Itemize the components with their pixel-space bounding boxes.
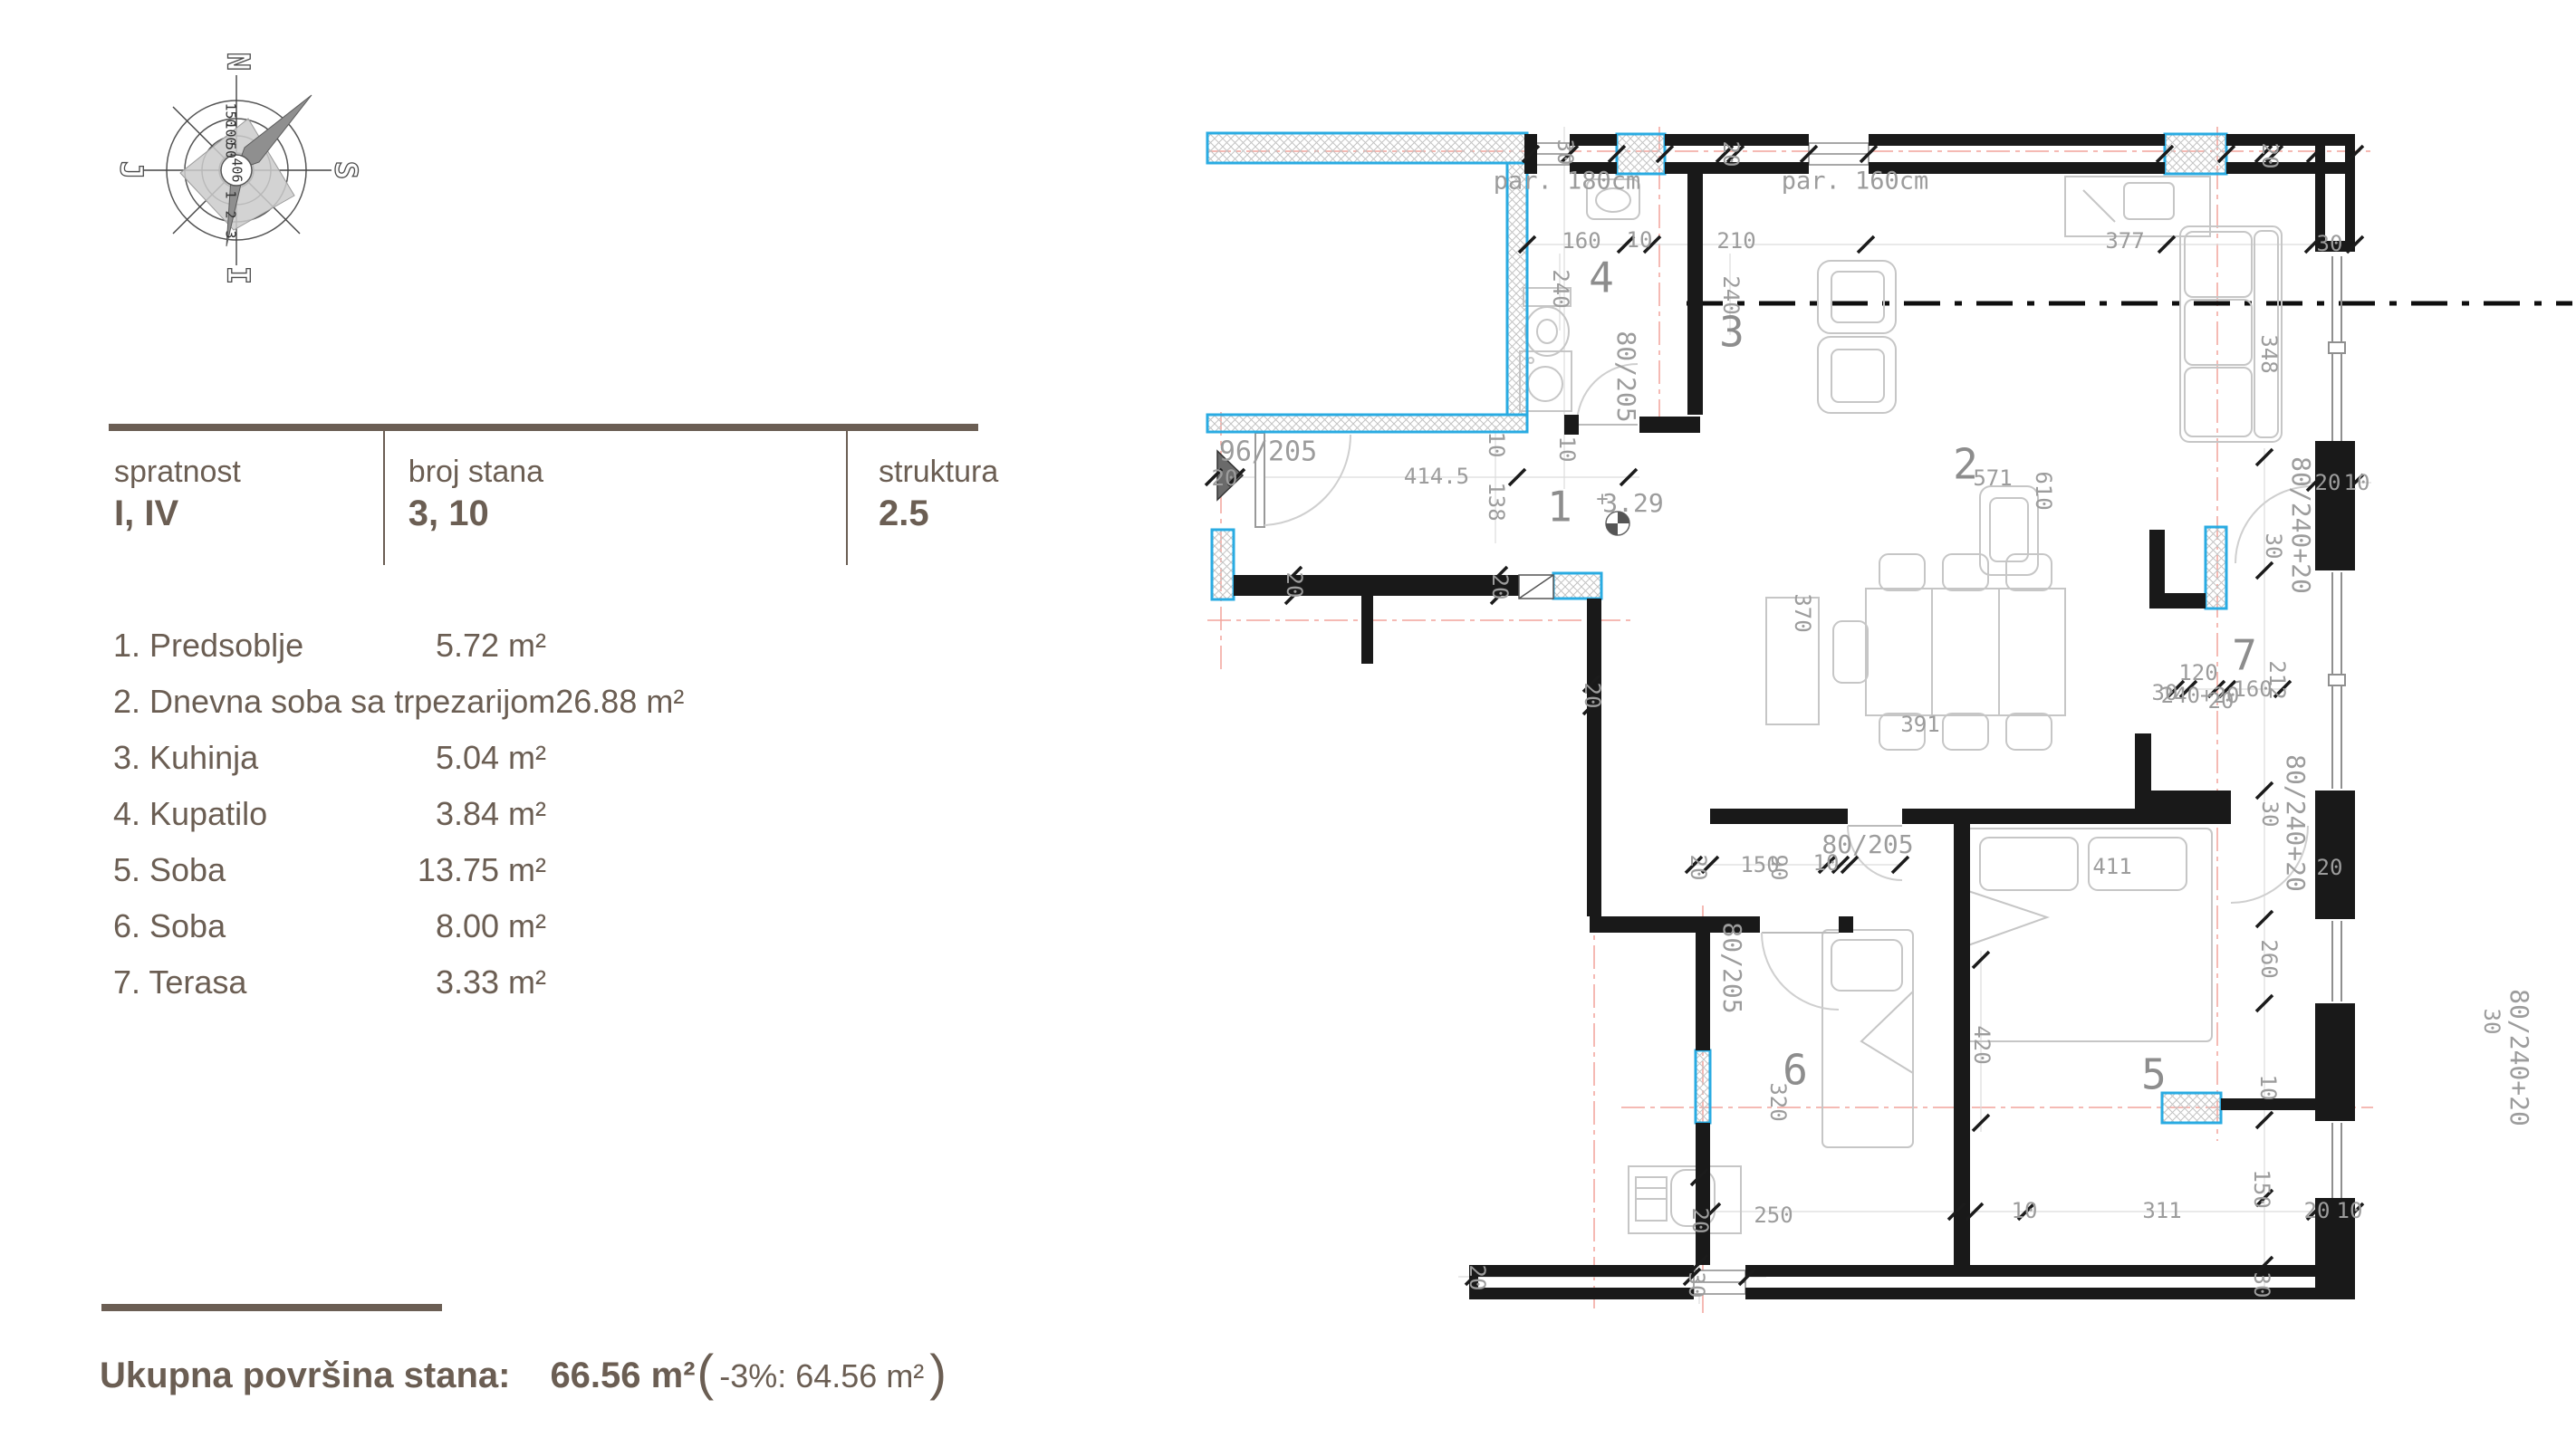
window-room6 [1696, 1050, 1710, 1123]
dim-label: 10 [2012, 1198, 2038, 1223]
dim-label: 160 [1562, 228, 1600, 254]
compass-labels: NSIJ15010050406123 [113, 53, 364, 284]
compass-letter: I [220, 266, 256, 284]
total-paren-open: ( [697, 1343, 715, 1402]
dim-label: 3.29 [1602, 488, 1663, 518]
floor-label: spratnost [114, 455, 383, 489]
dim-label: 80/240+20 [2286, 456, 2316, 594]
room-name: 5. Soba [113, 842, 226, 898]
room6-door [1762, 933, 1839, 1010]
dim-label: 96/205 [1219, 436, 1317, 468]
hall-wall-piece [1553, 573, 1601, 599]
dim-label: 138 [1484, 482, 1509, 521]
room-number: 5 [2141, 1050, 2167, 1099]
dim-label: par. 180cm [1494, 168, 1641, 196]
total-paren-close: ) [929, 1343, 947, 1402]
floor-plan-drawing: 3020par. 180cmpar. 160cm2016010210377302… [1177, 54, 2576, 1376]
room-number: 1 [1547, 483, 1572, 532]
dim-label: 391 [1900, 712, 1939, 737]
dim-label: 20 [1465, 1265, 1490, 1291]
dim-label: + [1596, 488, 1608, 511]
walls [1234, 134, 2355, 1299]
dim-label: 30 [2261, 533, 2286, 560]
dim-label: 571 [1973, 465, 2012, 491]
floor-value: I, IV [114, 493, 383, 534]
room-area: 3.33 m² [436, 954, 546, 1011]
dim-label: 10 [2344, 470, 2370, 495]
dim-label: 240 [1548, 269, 1573, 308]
double-bed [1966, 829, 2212, 1041]
compass-letter: N [220, 53, 256, 71]
dim-label: 20 [2208, 688, 2235, 714]
dim-label: 80/240+20 [2504, 989, 2534, 1126]
dim-label: 120 [2178, 660, 2217, 685]
room-list-item: 7. Terasa 3.33 m² [113, 954, 546, 1011]
dim-label: 30 [2479, 1009, 2504, 1035]
dim-label: 150 [2249, 1169, 2274, 1208]
dim-label: 10 [2255, 1075, 2281, 1101]
dim-label: 20 [2257, 143, 2283, 169]
dim-label: 414.5 [1404, 464, 1469, 489]
dim-label: 20 [1580, 683, 1605, 709]
dim-label: 420 [1969, 1025, 1994, 1064]
room-area: 13.75 m² [418, 842, 546, 898]
total-reduced-value: -3%: 64.56 m² [719, 1357, 924, 1395]
dim-label: 20 [1487, 574, 1513, 600]
dim-label: 10 [1627, 227, 1653, 253]
room-list: 1. Predsoblje 5.72 m² 2. Dnevna soba sa … [113, 618, 546, 1011]
dim-label: 30 [1552, 139, 1578, 166]
room-number: 3 [1719, 308, 1745, 357]
total-label: Ukupna površina stana: [100, 1356, 510, 1396]
apartment-info-table: spratnost I, IV broj stana 3, 10 struktu… [109, 424, 978, 565]
room-list-item: 4. Kupatilo 3.84 m² [113, 786, 546, 842]
dim-label: 80/205 [1717, 922, 1747, 1013]
dim-label: 90 [1766, 855, 1792, 881]
dim-label: 30 [2317, 231, 2343, 256]
total-area-line: Ukupna površina stana: 66.56 m² ( -3%: 6… [100, 1340, 948, 1399]
dim-label: 20 [1686, 855, 1711, 881]
room-name: 3. Kuhinja [113, 730, 258, 786]
dim-label: 10 [2337, 1198, 2363, 1223]
apartment-number-label: broj stana [409, 455, 846, 489]
dim-label: 30 [1684, 1272, 1709, 1298]
dim-label: 370 [1790, 593, 1815, 632]
total-value: 66.56 m² [550, 1356, 695, 1396]
armchair [1818, 261, 1896, 333]
compass-scale-label: 2 [223, 210, 239, 218]
room-list-item: 2. Dnevna soba sa trpezarijom 26.88 m² [113, 674, 546, 730]
room-name: 1. Predsoblje [113, 618, 303, 674]
room-list-item: 5. Soba 13.75 m² [113, 842, 546, 898]
desk [1629, 1166, 1741, 1233]
dim-label: 20 [2304, 1198, 2331, 1223]
apartment-number-value: 3, 10 [409, 493, 846, 534]
highlighted-windows [1207, 133, 2226, 1123]
dim-label: 311 [2142, 1198, 2181, 1223]
dim-label: par. 160cm [1782, 168, 1929, 196]
compass-rose: NSIJ15010050406123 [87, 16, 386, 315]
room-area: 26.88 m² [555, 674, 684, 730]
room-number: 6 [1783, 1046, 1808, 1095]
dim-label: 80/240+20 [2281, 754, 2311, 892]
dim-label: 80/205 [1611, 331, 1641, 422]
room-list-item: 6. Soba 8.00 m² [113, 898, 546, 954]
dimension-labels: 3020par. 180cmpar. 160cm2016010210377302… [1212, 139, 2534, 1298]
dim-label: 20 [1718, 141, 1744, 168]
dim-label: 250 [1754, 1203, 1793, 1228]
dim-label: 260 [2256, 939, 2282, 978]
single-bed [1822, 930, 1913, 1147]
room-number: 2 [1953, 440, 1978, 489]
dim-label: 20 [1282, 572, 1307, 599]
room-area: 5.72 m² [436, 618, 546, 674]
armchair [1818, 337, 1896, 413]
compass-scale-label: 1 [223, 190, 239, 198]
info-col-floor: spratnost I, IV [109, 431, 383, 565]
room-number: 7 [2232, 631, 2257, 680]
dim-label: 210 [1716, 228, 1755, 254]
dim-label: 20 [1687, 1208, 1713, 1234]
dim-label: 30 [2257, 801, 2283, 828]
adjacent-structure-top [1207, 133, 1527, 163]
entrance-pier [1212, 530, 1234, 599]
room-area: 5.04 m² [436, 730, 546, 786]
dim-label: 20 [1212, 465, 1238, 491]
dim-label: 10 [1484, 432, 1509, 458]
dim-label: 411 [2092, 854, 2131, 879]
dim-label: 377 [2105, 228, 2144, 254]
room-name: 7. Terasa [113, 954, 246, 1011]
room-name: 2. Dnevna soba sa trpezarijom [113, 674, 555, 730]
dim-label: 80/205 [1821, 829, 1913, 859]
total-divider [101, 1304, 442, 1311]
window-room5 [2162, 1093, 2221, 1123]
adjacent-structure-side [1507, 163, 1527, 415]
dim-label: 20 [2317, 855, 2343, 880]
compass-scale-label: 50 [223, 142, 239, 158]
dim-label: 10 [1554, 436, 1580, 463]
structure-label: struktura [879, 455, 978, 489]
compass-letter: J [113, 161, 149, 179]
room-area: 8.00 m² [436, 898, 546, 954]
terrace-wall-piece [2206, 527, 2226, 609]
shaft-symbol [1519, 575, 1553, 599]
room-area: 3.84 m² [436, 786, 546, 842]
compass-letter: S [328, 161, 364, 179]
structure-value: 2.5 [879, 493, 978, 534]
window-living [2165, 134, 2226, 174]
room-name: 6. Soba [113, 898, 226, 954]
compass-scale-label: 406 [229, 158, 245, 182]
compass-scale-label: 3 [223, 230, 239, 238]
info-col-apartment-number: broj stana 3, 10 [383, 431, 846, 565]
dim-label: 212 [2264, 660, 2290, 699]
dining-table [1833, 554, 2065, 750]
adjacent-structure-bottom [1207, 415, 1527, 432]
info-col-structure: struktura 2.5 [846, 431, 978, 565]
room-name: 4. Kupatilo [113, 786, 267, 842]
dim-label: 20 [2315, 470, 2341, 495]
dim-label: 610 [2031, 471, 2056, 510]
dim-label: 30 [2249, 1272, 2274, 1298]
room-list-item: 1. Predsoblje 5.72 m² [113, 618, 546, 674]
room-list-item: 3. Kuhinja 5.04 m² [113, 730, 546, 786]
dim-label: 348 [2256, 334, 2282, 373]
room-number: 4 [1589, 254, 1614, 302]
